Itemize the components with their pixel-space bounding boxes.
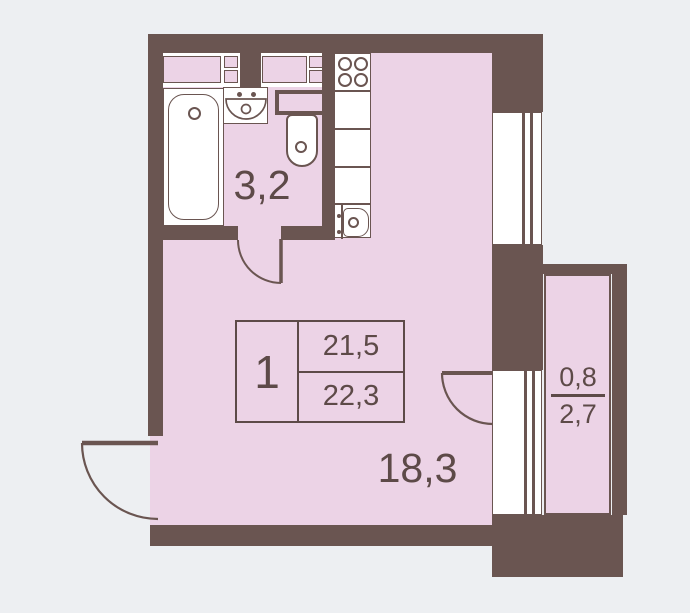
unit-info-table: 1 21,5 22,3 xyxy=(235,320,405,423)
sink-tap xyxy=(337,230,341,234)
cabinet-icon xyxy=(309,70,323,83)
washbasin-bowl xyxy=(224,88,269,125)
wall-bottom xyxy=(150,525,492,546)
wall-balcony-right xyxy=(612,264,627,515)
entry-opening-floor xyxy=(150,436,163,525)
sink-drain xyxy=(348,217,359,228)
balcony-area-full: 2,7 xyxy=(545,400,611,428)
wall-duct xyxy=(240,34,261,87)
unit-number-cell: 1 xyxy=(237,322,299,421)
counter-divider xyxy=(335,128,370,130)
toilet-drain xyxy=(295,141,307,153)
counter-divider xyxy=(335,90,370,92)
living-area-cell: 21,5 xyxy=(299,322,403,373)
washbasin-icon xyxy=(223,87,268,124)
wall-bottom-right-block xyxy=(492,515,623,577)
fraction-line xyxy=(551,394,605,396)
cabinet-icon xyxy=(309,56,323,68)
kitchen-counter xyxy=(334,53,371,238)
stove-icon xyxy=(354,57,368,71)
sink-tap xyxy=(337,214,341,218)
wall-right-upper xyxy=(492,34,543,112)
stove-icon xyxy=(354,73,368,87)
wall-kitchen xyxy=(322,53,335,240)
cabinet-icon xyxy=(262,56,307,83)
bathtub-icon xyxy=(163,88,224,226)
floor-plan: 3,2 18,3 0,8 2,7 1 21,5 22,3 xyxy=(0,0,690,613)
living-area-label: 18,3 xyxy=(370,447,465,490)
counter-divider xyxy=(335,166,370,168)
stove-icon xyxy=(338,73,352,87)
cabinet-icon xyxy=(224,70,238,83)
cabinet-icon xyxy=(224,56,238,68)
door-swing-icon xyxy=(82,443,158,519)
stove-icon xyxy=(338,57,352,71)
cabinet-icon xyxy=(163,56,221,83)
balcony-area-label: 0,8 2,7 xyxy=(545,363,611,428)
toilet-icon xyxy=(275,90,327,115)
balcony-area-reduced: 0,8 xyxy=(545,363,611,391)
bathroom-area-label: 3,2 xyxy=(218,164,306,207)
window-icon xyxy=(492,112,542,245)
total-area-cell: 22,3 xyxy=(299,373,403,422)
wall-bathroom-bottom-left xyxy=(148,226,238,240)
wall-right-middle xyxy=(492,245,543,370)
wall-top xyxy=(148,34,543,53)
balcony-door-window-icon xyxy=(492,370,542,515)
